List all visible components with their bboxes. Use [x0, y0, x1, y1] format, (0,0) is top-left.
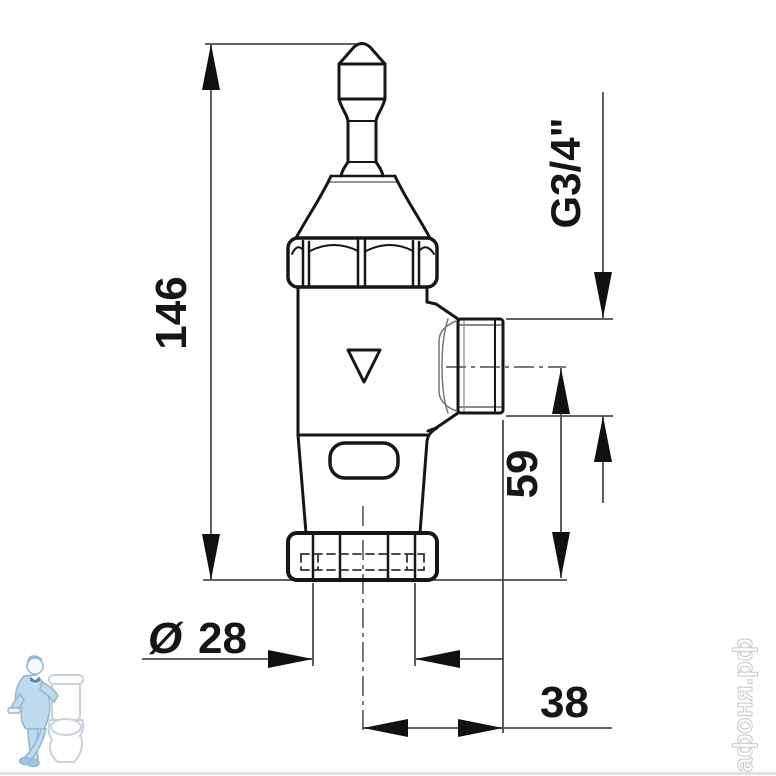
button-dome: [339, 44, 385, 65]
dim-label-59: 59: [498, 450, 547, 499]
outlet-flange-bottom: [428, 413, 458, 431]
dimension-overall-height: 146: [147, 44, 567, 580]
bonnet-side-left: [296, 176, 331, 238]
site-watermark: афоня.рф: [728, 638, 758, 772]
button-cylinder: [339, 64, 385, 99]
valve-lower-body: [298, 428, 437, 533]
arrow-down-icon: [594, 272, 612, 318]
dim-label-38: 38: [540, 678, 589, 727]
valve-cap-ring: [288, 238, 437, 287]
arrow-up-icon: [552, 368, 570, 414]
button-neck-right: [376, 99, 385, 176]
arrow-down-icon: [552, 532, 570, 578]
valve-outline: [288, 44, 503, 581]
nut-facet-lines: [313, 534, 415, 579]
plumber-watermark: [8, 656, 83, 767]
arrow-right-icon: [458, 719, 503, 737]
button-neck-left: [339, 99, 348, 176]
arrow-left-icon: [415, 650, 460, 668]
diameter-symbol: Ø: [148, 614, 184, 663]
dim-label-28: 28: [198, 614, 247, 663]
outlet-thread: [458, 319, 503, 413]
valve-technical-drawing: 146 G3/4" 59 Ø 28: [0, 0, 776, 776]
valve-push-button: [339, 44, 385, 177]
dim-label-g34: G3/4": [542, 118, 589, 229]
dimension-thread-size: G3/4": [506, 92, 613, 503]
valve-bonnet: [296, 176, 430, 238]
arrow-up-icon: [594, 416, 612, 462]
technical-drawing-canvas: 146 G3/4" 59 Ø 28: [0, 0, 776, 776]
arrow-up-icon: [202, 44, 220, 90]
lower-body-slot: [330, 443, 398, 478]
arrow-down-icon: [202, 534, 220, 580]
dimension-axis-to-base: 59: [498, 368, 570, 578]
dim-label-146: 146: [147, 276, 196, 349]
valve-body: [298, 287, 427, 435]
outlet-flange-facets: [439, 319, 456, 413]
arrow-right-icon: [268, 650, 313, 668]
outlet-flange-top: [427, 302, 458, 319]
bonnet-side-right: [395, 176, 430, 238]
arrow-left-icon: [363, 719, 408, 737]
toilet-figure: [49, 675, 84, 762]
lower-body-right-edge: [420, 428, 437, 533]
cap-ring-body: [288, 238, 437, 287]
flow-direction-triangle: [348, 350, 380, 382]
centerlines: [363, 367, 566, 734]
dimension-diameter-28: Ø 28: [142, 583, 504, 668]
lower-body-left-edge: [298, 435, 306, 533]
